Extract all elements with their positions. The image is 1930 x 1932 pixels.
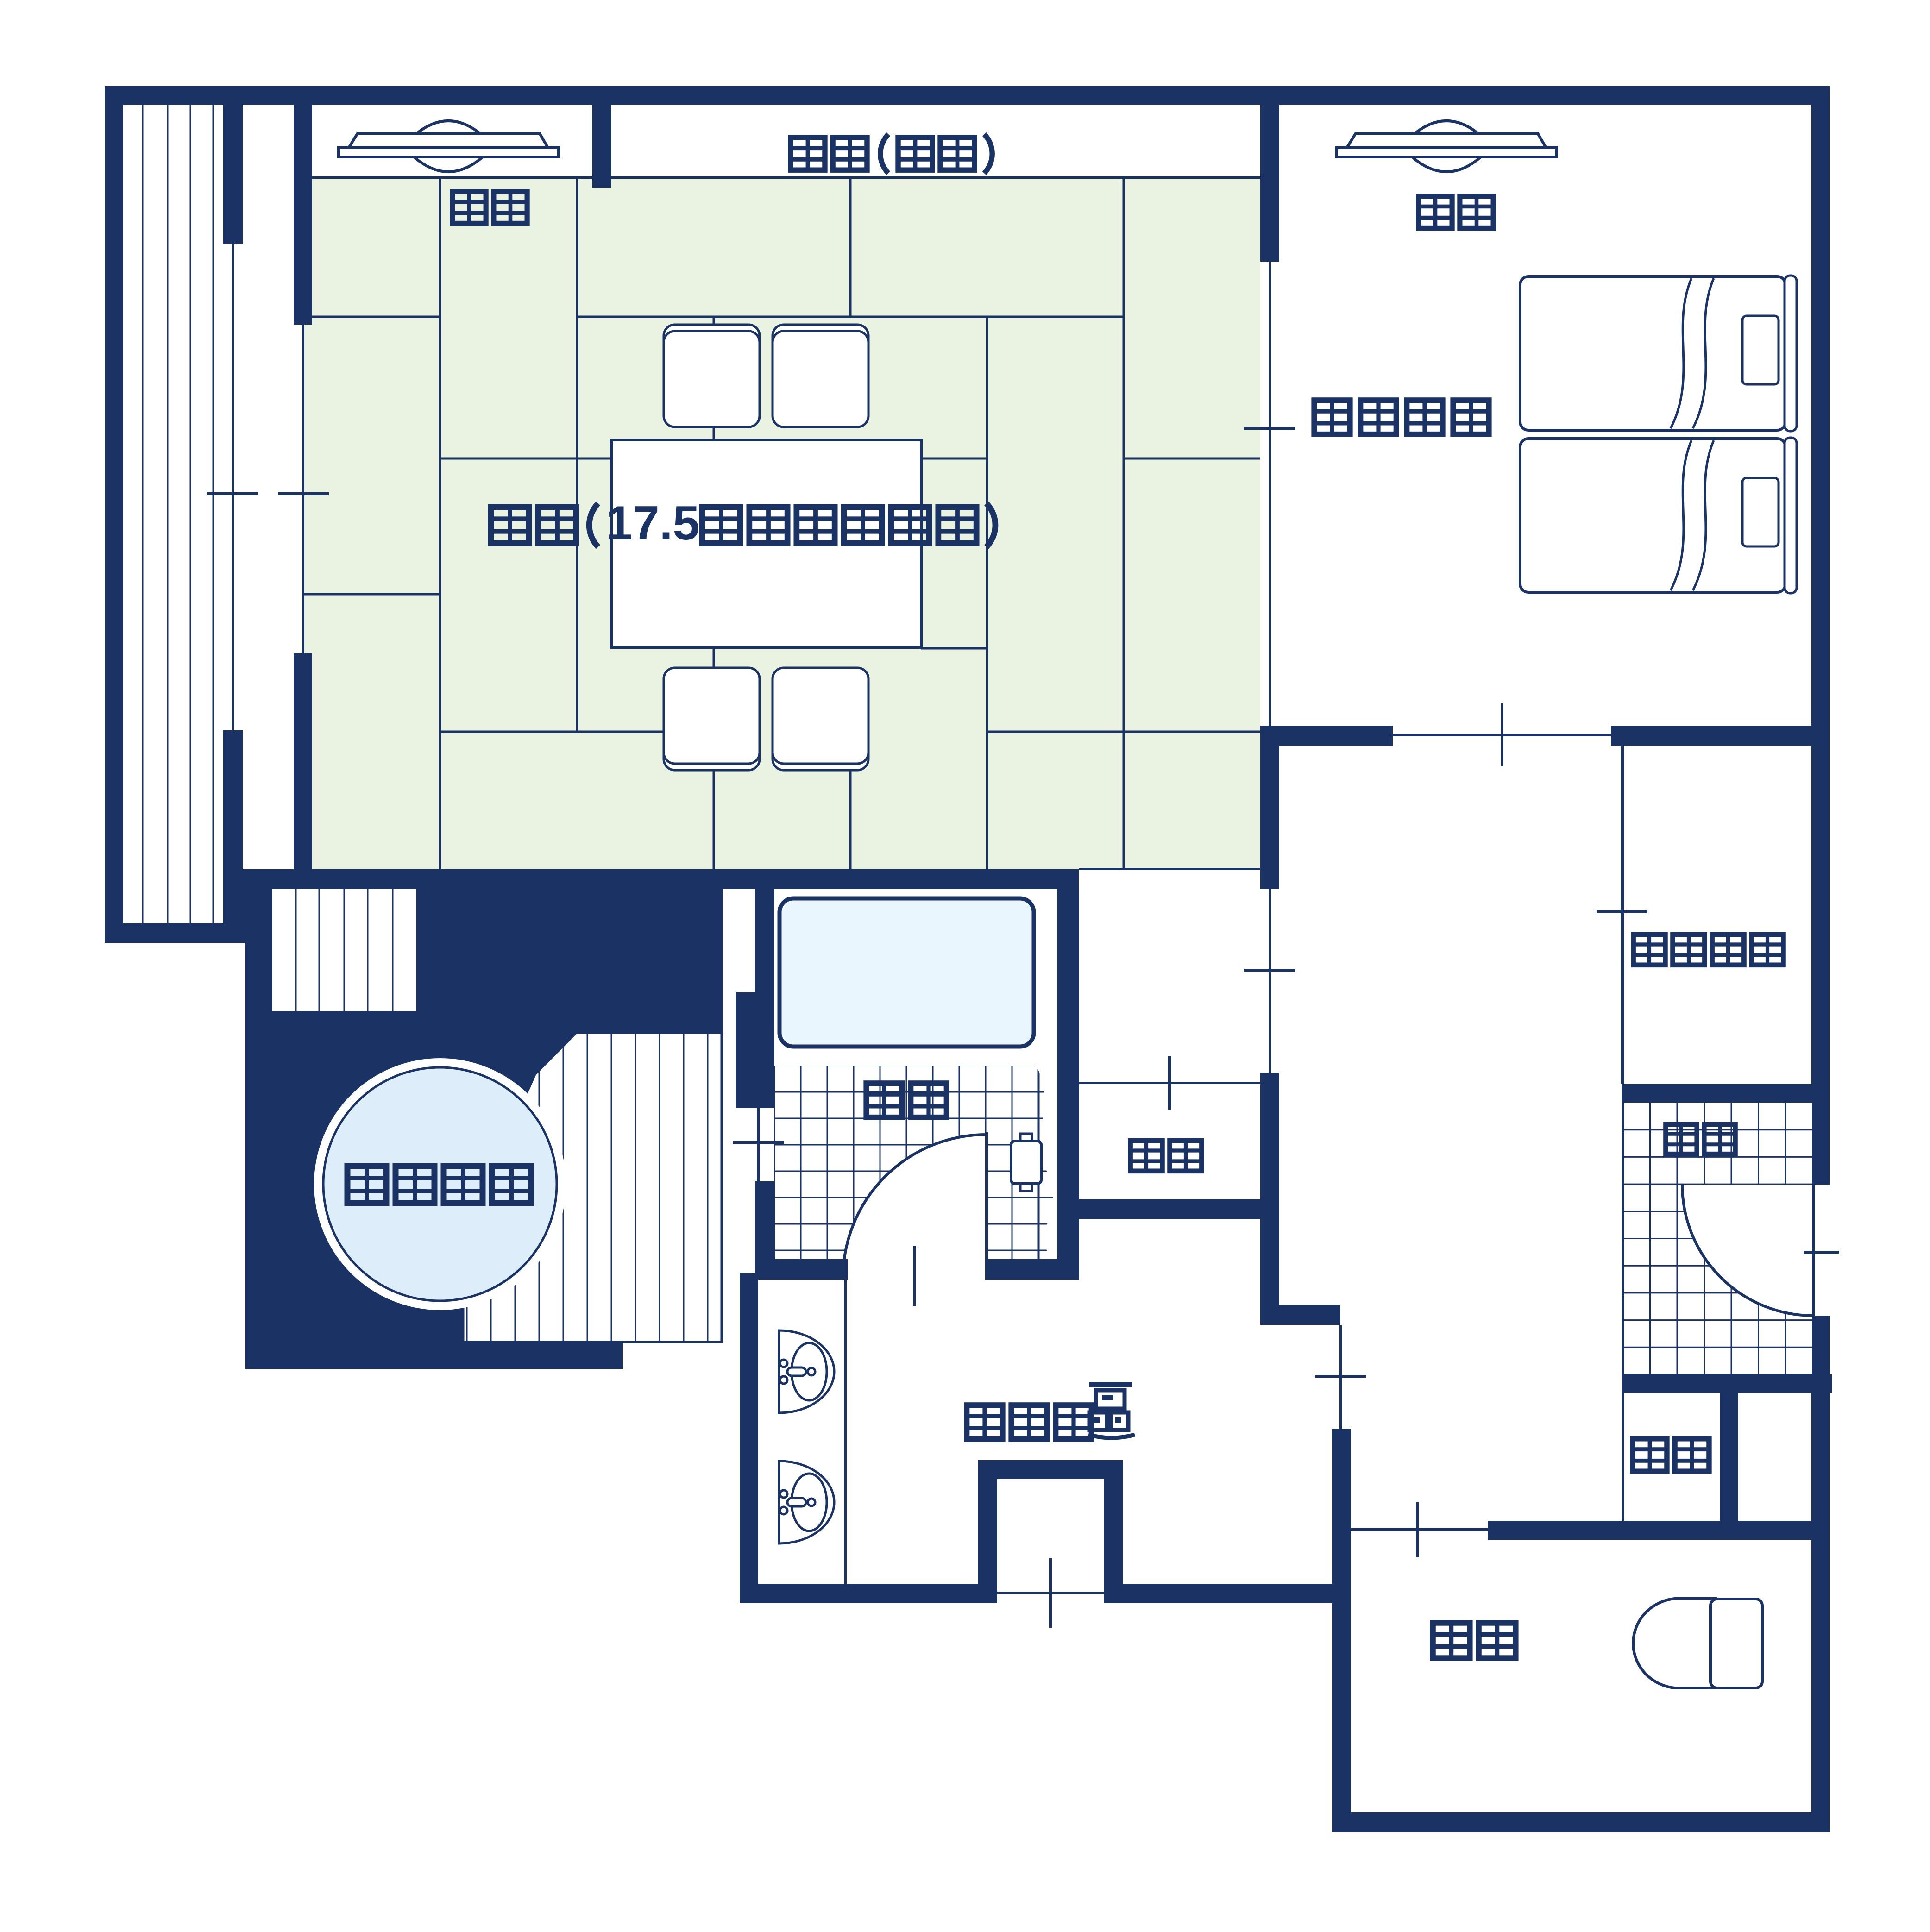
svg-text:17.5: 17.5 bbox=[606, 496, 699, 550]
